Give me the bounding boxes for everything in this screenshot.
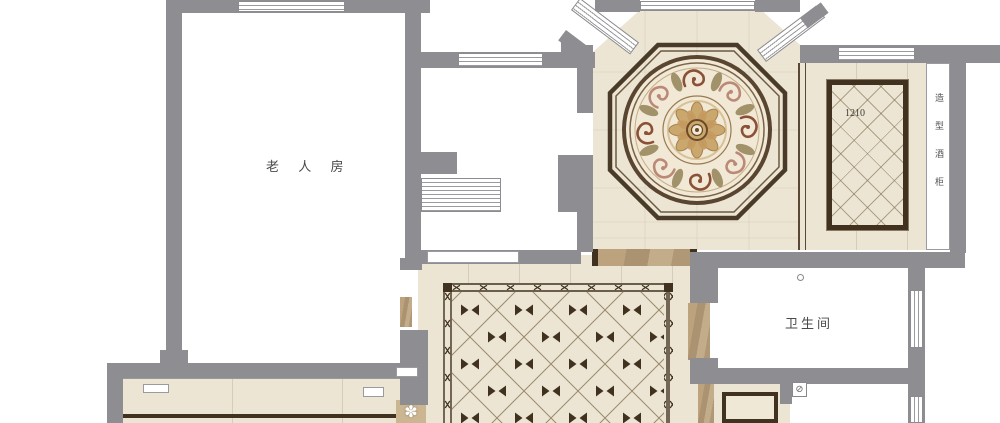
- window: [910, 290, 923, 348]
- window: [458, 53, 543, 67]
- wall: [166, 0, 182, 378]
- window: [421, 178, 501, 212]
- wall-pier: [558, 155, 593, 212]
- elder-room-label: 老 人 房: [266, 156, 352, 175]
- wall-duct: [690, 252, 718, 303]
- wall: [690, 252, 965, 268]
- window: [838, 47, 915, 61]
- wall-pillar: [160, 350, 188, 363]
- opening: [427, 251, 519, 263]
- door-circle-icon: [797, 274, 804, 281]
- bowtie-tile-field: [443, 283, 673, 423]
- lattice-panel: [827, 80, 908, 230]
- window: [910, 396, 923, 423]
- fixture-box: [396, 367, 418, 377]
- shower-panel-border: [722, 392, 778, 423]
- wall: [690, 368, 925, 384]
- medallion: [624, 57, 770, 203]
- wall: [421, 152, 457, 174]
- tile-trim-strip: [798, 63, 806, 250]
- wine-cabinet-label: 造型酒柜: [933, 93, 946, 243]
- wall: [107, 363, 421, 378]
- wall: [405, 0, 421, 263]
- balcony-fixture: [363, 387, 384, 397]
- balcony-border-line: [123, 414, 420, 418]
- travertine-strip: [688, 303, 710, 360]
- wall: [950, 63, 966, 253]
- panel-size-label: 1210: [845, 108, 865, 119]
- travertine-strip: [698, 383, 714, 423]
- threshold: [598, 249, 690, 266]
- travertine-strip: [400, 297, 412, 327]
- drain-icon: ⊘: [792, 382, 807, 397]
- wall: [595, 0, 640, 12]
- wall: [577, 205, 593, 252]
- bathroom-label: 卫生间: [785, 313, 833, 332]
- window: [640, 1, 755, 11]
- wall: [755, 0, 800, 12]
- balcony-fixture: [143, 384, 169, 393]
- window: [238, 1, 345, 12]
- wall: [780, 384, 792, 404]
- floor-plan: 1210 造型酒柜: [0, 0, 1000, 423]
- wall: [400, 258, 422, 270]
- wall: [107, 363, 123, 423]
